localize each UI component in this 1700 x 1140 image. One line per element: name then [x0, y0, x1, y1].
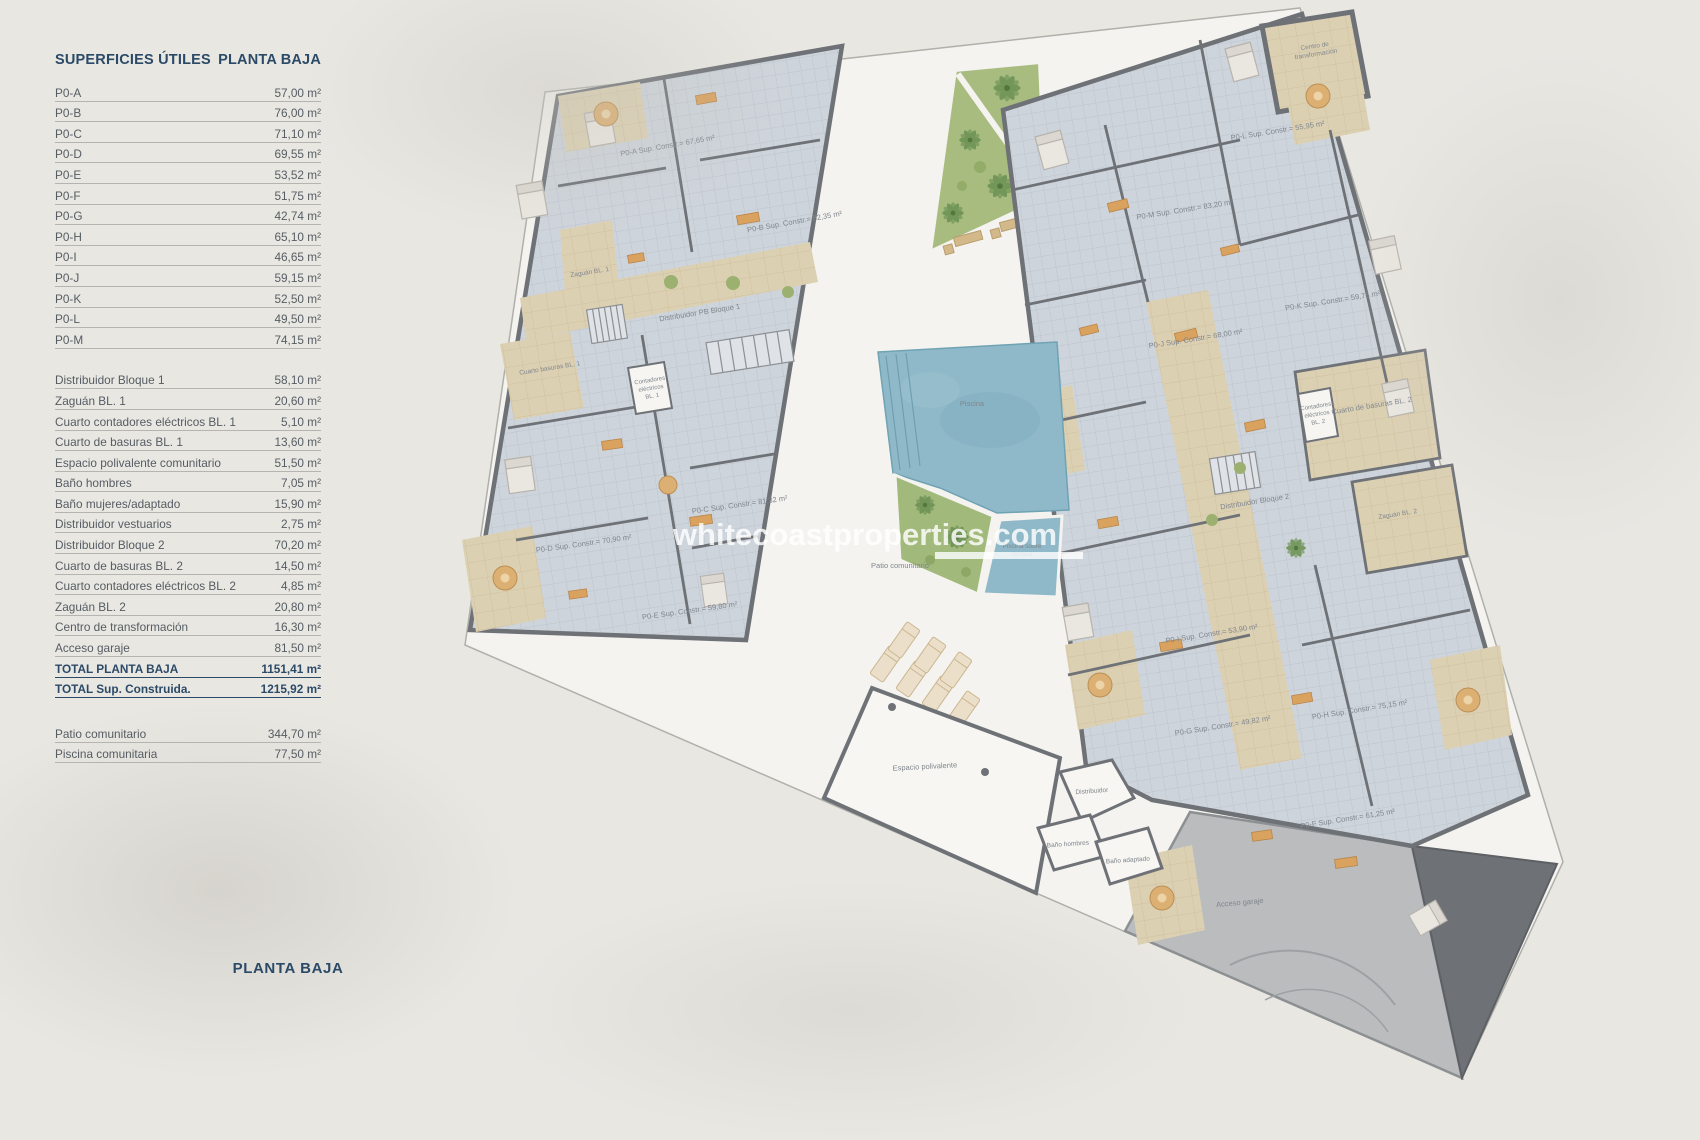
table-row: Cuarto contadores eléctricos BL. 24,85 m… — [55, 575, 321, 596]
row-label: TOTAL Sup. Construida. — [55, 682, 191, 696]
row-label: Baño mujeres/adaptado — [55, 497, 180, 511]
table-row: P0-E53,52 m² — [55, 163, 321, 184]
row-label: P0-G — [55, 209, 83, 223]
table-total-row: TOTAL Sup. Construida.1215,92 m² — [55, 678, 321, 699]
row-value: 51,75 m² — [274, 189, 321, 203]
row-label: Centro de transformación — [55, 620, 188, 634]
row-value: 69,55 m² — [274, 147, 321, 161]
row-value: 7,05 m² — [281, 476, 321, 490]
row-label: Cuarto de basuras BL. 1 — [55, 435, 183, 449]
stairs-block-1 — [587, 304, 628, 343]
row-value: 53,52 m² — [274, 168, 321, 182]
stairs-block-2 — [1209, 452, 1260, 495]
row-value: 1215,92 m² — [261, 682, 321, 696]
table-row: Centro de transformación16,30 m² — [55, 616, 321, 637]
row-label: P0-L — [55, 312, 80, 326]
row-value: 14,50 m² — [274, 559, 321, 573]
row-label: P0-K — [55, 292, 81, 306]
row-value: 344,70 m² — [268, 727, 321, 741]
table-header: SUPERFICIES ÚTILES PLANTA BAJA — [55, 52, 321, 68]
row-value: 57,00 m² — [274, 86, 321, 100]
row-value: 51,50 m² — [274, 456, 321, 470]
row-label: P0-E — [55, 168, 81, 182]
table-group-apartments: P0-A57,00 m²P0-B76,00 m²P0-C71,10 m²P0-D… — [55, 81, 321, 349]
table-row: P0-J59,15 m² — [55, 266, 321, 287]
plan-room-label: Patio comunitario — [871, 561, 929, 570]
row-label: P0-I — [55, 250, 77, 264]
row-label: P0-D — [55, 147, 82, 161]
row-value: 4,85 m² — [281, 579, 321, 593]
row-label: Zaguán BL. 1 — [55, 394, 126, 408]
table-row: Patio comunitario344,70 m² — [55, 722, 321, 743]
row-label: P0-A — [55, 86, 81, 100]
table-row: Distribuidor Bloque 270,20 m² — [55, 533, 321, 554]
row-value: 70,20 m² — [274, 538, 321, 552]
row-label: Zaguán BL. 2 — [55, 600, 126, 614]
row-value: 2,75 m² — [281, 517, 321, 531]
table-row: Espacio polivalente comunitario51,50 m² — [55, 451, 321, 472]
table-group-exterior: Patio comunitario344,70 m²Piscina comuni… — [55, 722, 321, 763]
row-value: 58,10 m² — [274, 373, 321, 387]
row-value: 59,15 m² — [274, 271, 321, 285]
row-value: 81,50 m² — [274, 641, 321, 655]
table-row: P0-A57,00 m² — [55, 81, 321, 102]
table-subtitle: PLANTA BAJA — [218, 52, 321, 68]
row-label: Espacio polivalente comunitario — [55, 456, 221, 470]
table-row: P0-B76,00 m² — [55, 102, 321, 123]
row-value: 42,74 m² — [274, 209, 321, 223]
row-value: 13,60 m² — [274, 435, 321, 449]
row-label: P0-B — [55, 106, 81, 120]
row-value: 5,10 m² — [281, 415, 321, 429]
row-label: P0-M — [55, 333, 83, 347]
table-row: P0-G42,74 m² — [55, 205, 321, 226]
table-row: Zaguán BL. 120,60 m² — [55, 389, 321, 410]
row-label: Cuarto de basuras BL. 2 — [55, 559, 183, 573]
table-row: P0-D69,55 m² — [55, 143, 321, 164]
table-row: Baño mujeres/adaptado15,90 m² — [55, 492, 321, 513]
row-label: Piscina comunitaria — [55, 747, 157, 761]
row-value: 1151,41 m² — [261, 662, 321, 676]
row-value: 77,50 m² — [274, 747, 321, 761]
row-label: Distribuidor Bloque 2 — [55, 538, 165, 552]
table-row: Acceso garaje81,50 m² — [55, 636, 321, 657]
row-label: Patio comunitario — [55, 727, 146, 741]
table-title: SUPERFICIES ÚTILES — [55, 52, 211, 68]
plan-room-label: Piscina — [960, 399, 985, 408]
row-value: 65,10 m² — [274, 230, 321, 244]
row-value: 20,80 m² — [274, 600, 321, 614]
svg-text:whitecoastproperties.com: whitecoastproperties.com — [672, 517, 1057, 552]
table-row: Baño hombres7,05 m² — [55, 472, 321, 493]
row-label: P0-F — [55, 189, 81, 203]
row-label: Baño hombres — [55, 476, 132, 490]
row-label: P0-H — [55, 230, 82, 244]
table-row: Distribuidor vestuarios2,75 m² — [55, 513, 321, 534]
row-label: Distribuidor Bloque 1 — [55, 373, 165, 387]
row-value: 15,90 m² — [274, 497, 321, 511]
row-value: 76,00 m² — [274, 106, 321, 120]
table-row: P0-I46,65 m² — [55, 246, 321, 267]
table-row: P0-F51,75 m² — [55, 184, 321, 205]
row-value: 46,65 m² — [274, 250, 321, 264]
table-row: Cuarto de basuras BL. 113,60 m² — [55, 431, 321, 452]
row-label: Cuarto contadores eléctricos BL. 2 — [55, 579, 236, 593]
table-row: P0-C71,10 m² — [55, 122, 321, 143]
table-row: Distribuidor Bloque 158,10 m² — [55, 369, 321, 390]
row-label: Distribuidor vestuarios — [55, 517, 172, 531]
row-label: P0-J — [55, 271, 79, 285]
table-row: Zaguán BL. 220,80 m² — [55, 595, 321, 616]
table-row: Cuarto contadores eléctricos BL. 15,10 m… — [55, 410, 321, 431]
row-value: 52,50 m² — [274, 292, 321, 306]
table-row: Piscina comunitaria77,50 m² — [55, 743, 321, 764]
row-label: Acceso garaje — [55, 641, 130, 655]
plan-title: PLANTA BAJA — [203, 960, 373, 977]
brochure-page: SUPERFICIES ÚTILES PLANTA BAJA P0-A57,00… — [0, 0, 1700, 1080]
table-total-row: TOTAL PLANTA BAJA1151,41 m² — [55, 657, 321, 678]
table-gap — [55, 698, 321, 722]
row-value: 71,10 m² — [274, 127, 321, 141]
table-row: Cuarto de basuras BL. 214,50 m² — [55, 554, 321, 575]
row-value: 16,30 m² — [274, 620, 321, 634]
table-row: P0-M74,15 m² — [55, 328, 321, 349]
row-value: 74,15 m² — [274, 333, 321, 347]
row-label: Cuarto contadores eléctricos BL. 1 — [55, 415, 236, 429]
row-value: 49,50 m² — [274, 312, 321, 326]
surfaces-table: SUPERFICIES ÚTILES PLANTA BAJA P0-A57,00… — [55, 52, 321, 763]
table-row: P0-H65,10 m² — [55, 225, 321, 246]
row-label: P0-C — [55, 127, 82, 141]
table-group-common: Distribuidor Bloque 158,10 m²Zaguán BL. … — [55, 369, 321, 699]
table-row: P0-L49,50 m² — [55, 308, 321, 329]
row-value: 20,60 m² — [274, 394, 321, 408]
row-label: TOTAL PLANTA BAJA — [55, 662, 178, 676]
table-row: P0-K52,50 m² — [55, 287, 321, 308]
table-gap — [55, 349, 321, 369]
